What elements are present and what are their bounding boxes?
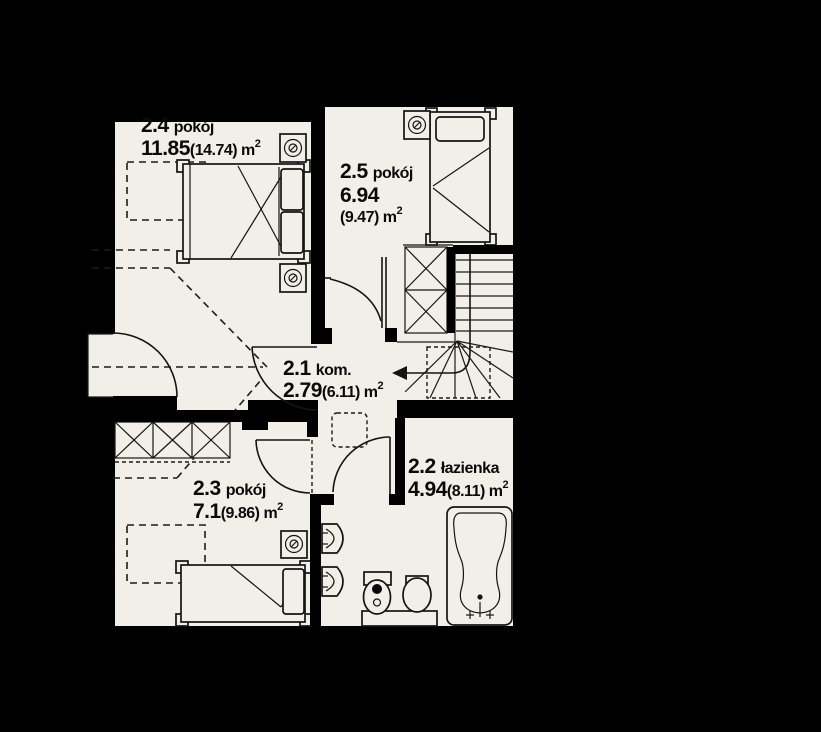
svg-text:6.94: 6.94: [340, 184, 380, 207]
bed-room25-icon: [426, 108, 496, 245]
washbasin-top-icon: [322, 524, 343, 553]
vent-room23-icon: [281, 531, 307, 558]
bathtub-icon: [447, 507, 512, 625]
vent-room25-icon: [404, 111, 430, 139]
svg-text:(9.47) m2: (9.47) m2: [340, 205, 403, 226]
vent-room24-top-icon: [280, 134, 306, 162]
bed-room24-icon: [177, 160, 310, 263]
floor-plan-canvas: 2.4pokój 11.85(14.74) m2 2.5pokój 6.94 (…: [0, 0, 821, 732]
wardrobe-room23-icon: [115, 422, 230, 462]
wardrobe-stair-icon: [403, 245, 453, 333]
floor-plan-drawing: 2.4pokój 11.85(14.74) m2 2.5pokój 6.94 (…: [0, 0, 821, 732]
bidet-icon: [403, 576, 431, 612]
washbasin-bottom-icon: [322, 567, 343, 596]
bed-room23-icon: [176, 561, 312, 626]
vent-room24-bottom-icon: [280, 264, 306, 292]
